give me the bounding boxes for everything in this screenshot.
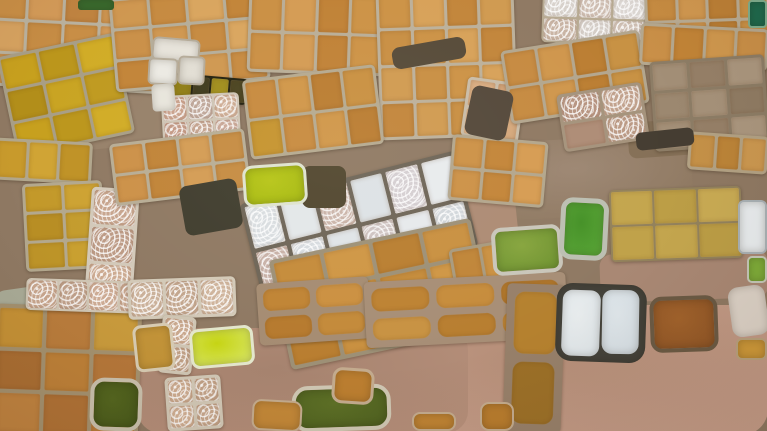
salt-pond-cell	[90, 227, 134, 264]
salt-pond-cell	[559, 92, 601, 122]
salt-pond-cell	[381, 67, 413, 101]
salt-pond-cell	[114, 29, 151, 59]
pond-white-pair-left	[561, 289, 601, 356]
salt-pond-cell	[283, 33, 315, 71]
salt-pond-cell	[372, 315, 431, 341]
salt-pond-cell	[605, 33, 641, 70]
pond-white-right-edge	[738, 200, 767, 254]
salt-pond-cell	[317, 311, 365, 336]
salt-pond-cell	[59, 144, 90, 181]
pond-white-strip	[151, 83, 176, 112]
pond-yellowgreen-center	[242, 162, 309, 208]
salt-pond-cell	[437, 312, 496, 338]
salt-pond-cell	[600, 85, 642, 115]
salt-pond-cell	[729, 86, 765, 114]
salt-pond-cell	[28, 0, 63, 21]
pond-tan-small	[132, 322, 177, 373]
pond-green-top-edge	[78, 0, 114, 10]
salt-pond-cell	[169, 405, 194, 429]
salt-pond-cell	[416, 102, 448, 136]
salt-pond-cell	[250, 32, 282, 70]
salt-pond-cell	[26, 213, 63, 240]
tile-row-texture-bl-b	[127, 276, 236, 320]
pond-yellow-bright-bottom	[188, 324, 255, 369]
salt-pond-cell	[412, 0, 444, 27]
salt-pond-cell	[480, 0, 512, 25]
salt-pond-cell	[451, 169, 481, 200]
salt-pond-cell	[196, 403, 221, 427]
salt-pond-cell	[543, 18, 576, 41]
salt-pond-cell	[371, 286, 430, 312]
shadow-right-of-yellow-pond	[302, 166, 346, 208]
salt-pond-cell	[187, 0, 224, 22]
salt-pond-cell	[277, 75, 311, 114]
salt-pond-cell	[379, 0, 411, 29]
salt-pond-cell	[612, 226, 654, 260]
salt-pond-cell	[188, 95, 212, 119]
salt-pond-cell	[342, 67, 376, 106]
pond-orange-right-edge	[736, 338, 767, 360]
salt-pond-cell	[453, 137, 483, 168]
salt-pond-cell	[691, 89, 727, 117]
salt-pond-cell	[315, 283, 363, 308]
salt-pond-cell	[130, 282, 163, 317]
pond-white-topleft-b	[147, 57, 178, 86]
salt-pond-cell	[315, 110, 349, 149]
pond-olive-bottomleft	[89, 377, 143, 431]
pond-row-bottomcenter-a	[256, 276, 372, 346]
salt-pond-cell	[579, 0, 612, 19]
pond-white-topleft-c	[177, 55, 205, 85]
salt-pond-cell	[611, 191, 653, 225]
salt-pond-cell	[149, 0, 186, 26]
salt-pond-cell	[708, 0, 736, 18]
tile-strip-right-edge	[687, 131, 767, 174]
pond-redbrown	[649, 295, 719, 353]
salt-pond-cell	[504, 49, 540, 86]
salt-pond-cell	[689, 60, 725, 88]
salt-pond-cell	[200, 279, 233, 314]
field-khaki	[609, 186, 743, 263]
salt-pond-cell	[642, 26, 672, 63]
salt-pond-cell	[436, 283, 495, 309]
salt-pond-cell	[652, 63, 688, 91]
pond-white-pair-right	[601, 290, 639, 355]
salt-pond-cell	[654, 91, 690, 119]
salt-pond-cell	[385, 164, 427, 214]
salt-pond-cell	[699, 223, 741, 257]
salt-pond-cell	[25, 185, 62, 212]
pond-white-farright	[727, 284, 767, 339]
salt-pond-cell	[45, 77, 86, 114]
salt-pond-cell	[264, 314, 312, 339]
salt-pond-cell	[509, 84, 545, 121]
salt-pond-cell	[647, 0, 675, 21]
salt-pond-cell	[282, 114, 316, 153]
salt-pond-cell	[655, 224, 697, 258]
salt-pond-cell	[46, 309, 91, 349]
salt-pond-cell	[90, 101, 131, 138]
salt-pond-cell	[38, 44, 79, 81]
salt-pond-cell	[245, 79, 279, 118]
salt-pond-cell	[0, 141, 27, 178]
aerial-photo-salt-evaporation-ponds	[0, 0, 767, 431]
salt-pond-cell	[415, 66, 447, 100]
pond-orange-small-c	[412, 412, 456, 431]
salt-pond-cell	[145, 139, 178, 169]
salt-pond-cell	[284, 0, 316, 31]
salt-pond-cell	[316, 35, 348, 73]
salt-pond-cell	[0, 52, 41, 89]
salt-pond-cell	[716, 136, 741, 170]
salt-pond-cell	[511, 361, 555, 424]
salt-pond-cell	[613, 0, 646, 20]
salt-pond-cell	[512, 174, 542, 205]
tile-grid-topcenter-c	[242, 64, 385, 160]
salt-pond-cell	[167, 379, 192, 403]
salt-pond-cell	[372, 233, 424, 274]
salt-pond-cell	[697, 188, 739, 222]
salt-pond-cell	[165, 280, 198, 315]
salt-pond-cell	[484, 140, 514, 171]
pond-green-bright	[558, 197, 609, 261]
salt-pond-cell	[481, 171, 511, 202]
salt-pond-cell	[149, 169, 182, 199]
salt-pond-cell	[310, 71, 344, 110]
salt-pond-cell	[571, 38, 607, 75]
salt-pond-cell	[111, 0, 148, 29]
salt-pond-cell	[58, 281, 87, 310]
salt-pond-cell	[0, 350, 42, 390]
tile-row-left-amber	[0, 137, 93, 184]
shadow-left-of-band	[178, 177, 244, 236]
salt-pond-cell	[0, 308, 44, 348]
salt-pond-cell	[741, 138, 766, 172]
salt-pond-cell	[116, 173, 149, 203]
salt-pond-cell	[45, 352, 90, 392]
salt-pond-cell	[513, 291, 557, 354]
salt-pond-cell	[211, 131, 244, 161]
tile-grid-right-of-band	[447, 134, 548, 208]
salt-pond-cell	[28, 242, 65, 269]
salt-pond-cell	[194, 377, 219, 401]
salt-pond-cell	[89, 282, 118, 311]
salt-pond-cell	[213, 94, 238, 118]
tile-grid-texture-bl-d	[164, 374, 224, 431]
salt-pond-cell	[28, 280, 57, 309]
salt-pond-cell	[251, 0, 283, 30]
salt-pond-cell	[515, 143, 545, 174]
salt-pond-cell	[43, 395, 88, 431]
salt-pond-cell	[564, 119, 606, 149]
pond-teal-topright	[748, 0, 767, 28]
salt-pond-cell	[262, 286, 310, 311]
pond-green-murky	[490, 224, 563, 277]
salt-pond-cell	[178, 135, 211, 165]
salt-pond-cell	[537, 44, 573, 81]
salt-pond-cell	[727, 57, 763, 85]
salt-pond-cell	[350, 173, 392, 223]
salt-pond-cell	[0, 0, 27, 19]
salt-pond-cell	[28, 142, 59, 179]
salt-pond-cell	[250, 118, 284, 157]
salt-pond-cell	[347, 106, 381, 145]
pond-orange-small-d	[480, 402, 514, 431]
salt-pond-cell	[544, 0, 577, 17]
pond-orange-small-a	[331, 367, 375, 406]
salt-pond-cell	[7, 85, 48, 122]
salt-pond-cell	[0, 393, 41, 431]
salt-pond-cell	[382, 103, 414, 137]
salt-pond-cell	[678, 0, 706, 20]
salt-pond-cell	[654, 189, 696, 223]
salt-pond-cell	[112, 143, 145, 173]
salt-pond-cell	[318, 0, 350, 33]
salt-pond-cell	[0, 21, 25, 52]
pond-green-right-edge	[747, 256, 767, 283]
pond-orange-small-b	[251, 399, 303, 431]
salt-pond-cell	[446, 0, 478, 26]
